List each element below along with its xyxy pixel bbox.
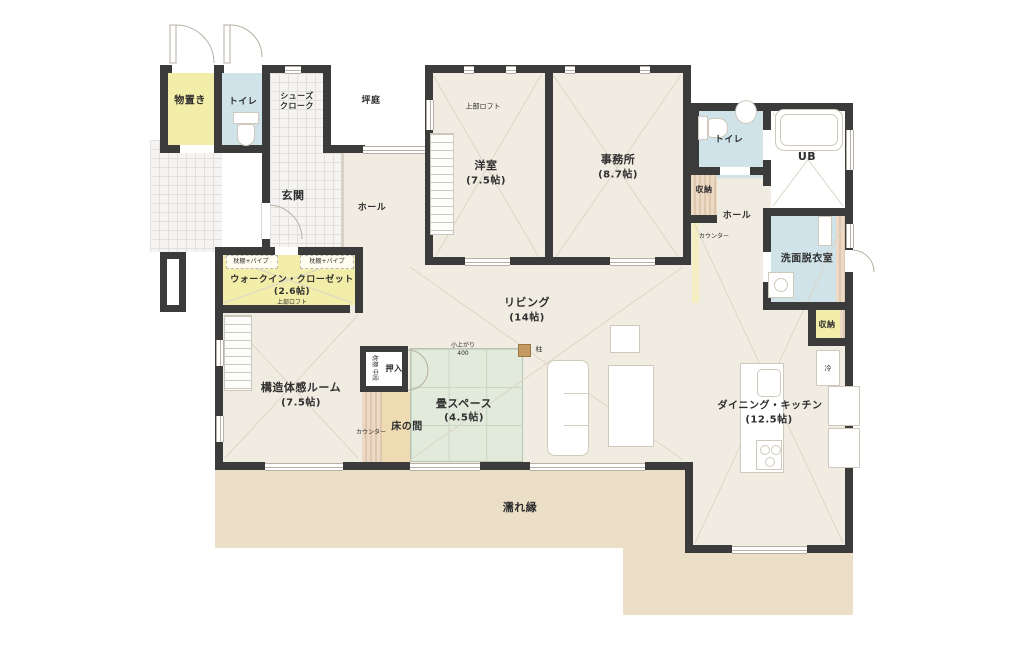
room-size-living: (14帖): [509, 312, 545, 325]
sliding-door: [410, 463, 480, 471]
room-label-shuno-hall: 収納: [696, 185, 713, 195]
room-label-jimusho: 事務所: [601, 153, 636, 167]
oshiire-inner-label: 枕棚 中段: [370, 355, 378, 381]
nureen-deck-a: [215, 470, 685, 548]
toilet-tank: [233, 112, 259, 124]
room-label-genkan: 玄関: [282, 189, 305, 203]
room-fill-storage: [168, 73, 214, 145]
room-size-kozo: (7.5帖): [281, 397, 321, 410]
tsuboniwa-court: [331, 65, 425, 153]
exterior-wall-frame: [160, 252, 186, 312]
room-label-tsuboniwa: 坪庭: [361, 96, 380, 108]
window: [846, 130, 854, 170]
stove: [756, 440, 782, 470]
wall: [763, 208, 853, 216]
genkan-step-edge: [341, 153, 344, 255]
room-label-toilet2: トイレ: [715, 135, 744, 147]
bathtub: [775, 109, 843, 151]
wall: [480, 462, 530, 470]
room-size-dk: (12.5帖): [745, 414, 792, 427]
wall: [845, 103, 853, 553]
counter-label-hall: カウンター: [699, 233, 729, 241]
room-label-tokonoma: 床の間: [391, 421, 423, 434]
wall: [545, 73, 553, 265]
room-label-shuno-dk: 収納: [819, 320, 836, 330]
window: [265, 463, 343, 471]
tatami-step-label: 小上がり 400: [451, 342, 475, 358]
window: [216, 416, 224, 442]
window: [216, 340, 224, 366]
door-gap: [262, 203, 270, 239]
room-label-kozo: 構造体感ルーム: [261, 381, 341, 395]
wall: [160, 65, 168, 153]
stairs: [224, 315, 252, 391]
exterior-cutout: [691, 65, 853, 103]
room-size-wic: (2.6帖): [274, 287, 310, 299]
nureen-deck-b: [623, 548, 853, 615]
room-label-hall-right: ホール: [723, 211, 752, 223]
cupboard: [828, 386, 860, 426]
wall: [763, 302, 853, 310]
wall: [214, 65, 224, 73]
vanity-cabinet: [818, 216, 832, 246]
bathtub-inner: [780, 114, 838, 146]
window: [363, 146, 425, 154]
entrance-approach-floor: [150, 140, 222, 252]
loft-label-wic: 上部ロフト: [277, 299, 307, 307]
toilet-tank: [698, 116, 708, 140]
wall: [691, 215, 717, 223]
fridge-label: 冷: [825, 364, 832, 373]
window: [846, 224, 854, 248]
wic-shelf-label-2: 枕棚+パイプ: [309, 258, 344, 266]
sliding-door: [465, 258, 510, 266]
washing-machine: [768, 272, 794, 298]
hall-counter-strip: [692, 223, 699, 303]
wall: [425, 257, 465, 265]
washing-machine-drum: [774, 278, 788, 292]
wall: [807, 545, 853, 553]
sliding-door: [610, 258, 655, 266]
room-size-yoshitsu: (7.5帖): [466, 175, 506, 188]
sliding-door: [530, 463, 645, 471]
wall: [545, 257, 610, 265]
door-gap: [275, 247, 298, 255]
side-table: [610, 325, 640, 353]
room-size-tatami: (4.5帖): [444, 412, 484, 425]
window: [565, 66, 575, 74]
living-table: [608, 365, 654, 447]
door-gap: [845, 250, 853, 272]
room-label-shoes-closet: シューズ クローク: [280, 92, 314, 113]
counter-mid-strip: [362, 392, 382, 462]
door-gap: [763, 130, 771, 160]
window: [506, 66, 516, 74]
sofa: [547, 360, 589, 456]
window: [640, 66, 650, 74]
wall: [685, 462, 693, 553]
loft-ladder: [430, 133, 454, 235]
room-label-wic: ウォークイン・クローゼット: [230, 275, 354, 287]
sliding-door: [732, 546, 807, 554]
room-label-toilet1: トイレ: [229, 97, 258, 109]
window: [464, 66, 474, 74]
washbasin: [735, 100, 757, 124]
room-label-oshiire: 押入: [386, 364, 403, 374]
dk-floor: [685, 465, 845, 553]
window: [285, 66, 301, 74]
senmen-shelf-wood: [836, 216, 845, 302]
room-fill-genkan: [270, 153, 343, 255]
wall: [683, 65, 691, 265]
wall: [262, 73, 270, 153]
room-label-nureen: 濡れ縁: [503, 501, 538, 515]
toilet-bowl: [237, 124, 255, 146]
pillar-marker: [518, 344, 531, 357]
room-label-dk: ダイニング・キッチン: [718, 400, 823, 413]
room-label-yoshitsu: 洋室: [475, 159, 498, 173]
wall: [355, 247, 363, 313]
room-size-jimusho: (8.7帖): [598, 169, 638, 182]
room-label-living: リビング: [504, 296, 550, 310]
wall: [808, 338, 853, 346]
wall: [510, 257, 545, 265]
pillar-label: 柱: [536, 345, 543, 354]
cupboard: [828, 428, 860, 468]
room-label-senmen: 洗面脱衣室: [781, 253, 834, 266]
room-label-hall-left: ホール: [358, 203, 387, 215]
wall: [343, 462, 410, 470]
wall: [215, 462, 265, 470]
door-gap: [180, 145, 214, 153]
wic-shelf-label-1: 枕棚+パイプ: [233, 258, 268, 266]
window: [426, 100, 434, 130]
loft-label-yoshitsu: 上部ロフト: [466, 102, 501, 111]
room-label-tatami: 畳スペース: [436, 397, 492, 411]
room-label-ub: UB: [798, 150, 816, 164]
door-gap: [720, 167, 750, 175]
floor-plan: 物置き トイレ シューズ クローク 坪庭 玄関 ホール 上部ロフト 洋室 (7.…: [0, 0, 1024, 664]
room-label-storage: 物置き: [174, 95, 206, 108]
room-fill-shoes-closet: [270, 73, 323, 153]
wall: [323, 145, 365, 153]
kitchen-sink: [757, 369, 781, 397]
wall: [655, 257, 691, 265]
wall: [685, 545, 732, 553]
wall: [323, 65, 331, 153]
wall: [214, 73, 222, 153]
counter-label-mid: カウンター: [356, 429, 386, 437]
